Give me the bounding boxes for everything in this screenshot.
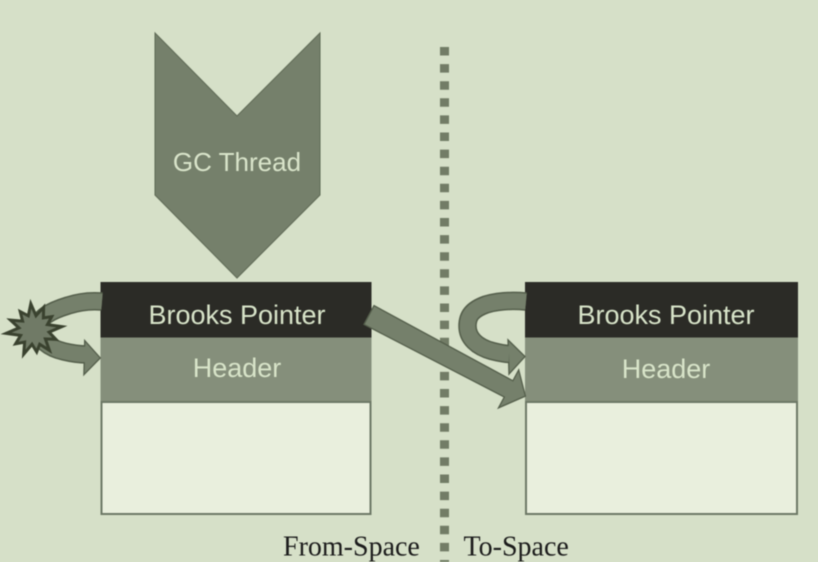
svg-text:Header: Header [193, 353, 282, 383]
svg-text:To-Space: To-Space [464, 532, 569, 562]
svg-text:GC Thread: GC Thread [173, 147, 301, 177]
svg-text:Brooks Pointer: Brooks Pointer [577, 300, 754, 330]
svg-text:From-Space: From-Space [283, 532, 420, 562]
svg-text:Brooks Pointer: Brooks Pointer [148, 300, 325, 330]
svg-text:Header: Header [622, 354, 711, 384]
